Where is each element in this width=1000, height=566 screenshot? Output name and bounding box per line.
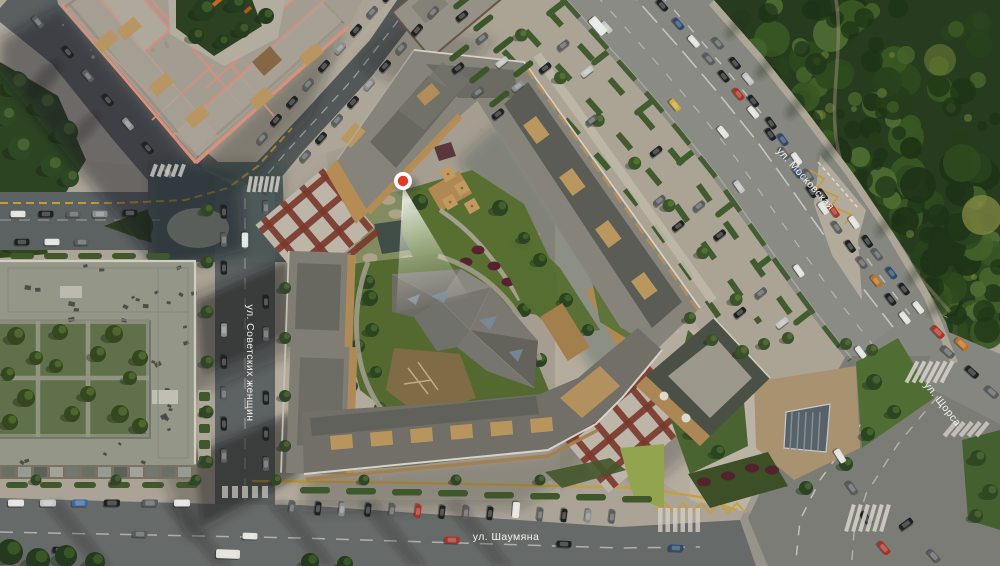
svg-text:ул. Советских женщин: ул. Советских женщин — [244, 305, 256, 422]
svg-text:ул. Шаумяна: ул. Шаумяна — [473, 531, 539, 543]
